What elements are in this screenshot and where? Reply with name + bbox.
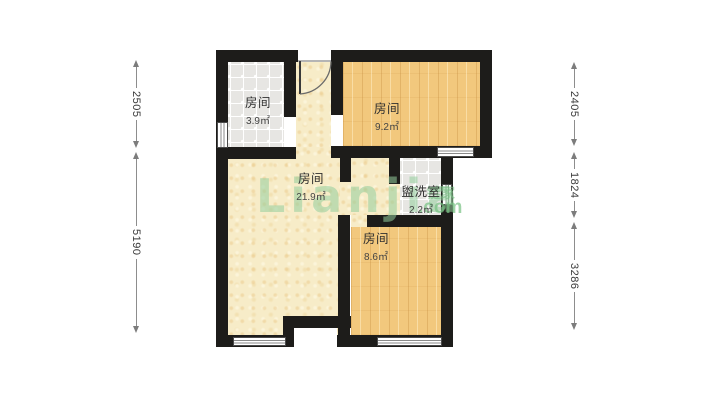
dimension-right-2: 1824	[566, 152, 582, 218]
arrow-up-icon	[571, 152, 577, 159]
room-area: 8.6㎡	[363, 248, 389, 263]
arrow-down-icon	[571, 323, 577, 330]
arrow-down-icon	[571, 139, 577, 146]
dimension-line	[574, 201, 575, 211]
dimension-value: 2505	[130, 88, 142, 120]
dimension-line	[574, 120, 575, 139]
dimension-value: 5190	[130, 226, 142, 258]
room-label-washroom: 盥洗室 2.2㎡	[401, 181, 440, 216]
room-name: 房间	[363, 228, 389, 247]
room-name: 房间	[296, 168, 325, 187]
dimension-line	[136, 67, 137, 88]
dimension-line	[136, 159, 137, 226]
dimension-value: 2405	[568, 88, 580, 120]
dimension-value: 3286	[568, 260, 580, 292]
room-label-top-left: 房间 3.9㎡	[245, 92, 271, 127]
room-area: 21.9㎡	[296, 188, 325, 203]
room-name: 房间	[374, 98, 400, 117]
arrow-up-icon	[133, 152, 139, 159]
dimension-line	[136, 259, 137, 326]
dimension-right-1: 2405	[566, 62, 582, 146]
dimension-line	[574, 159, 575, 169]
arrow-down-icon	[571, 211, 577, 218]
room-name: 盥洗室	[401, 181, 440, 200]
dimension-value: 1824	[568, 169, 580, 201]
room-area: 3.9㎡	[245, 112, 271, 127]
arrow-up-icon	[571, 222, 577, 229]
dimension-line	[574, 69, 575, 88]
arrow-up-icon	[571, 62, 577, 69]
room-label-bottom: 房间 8.6㎡	[363, 228, 389, 263]
dimension-line	[136, 120, 137, 141]
arrow-down-icon	[133, 326, 139, 333]
dimension-left-2: 5190	[128, 152, 144, 333]
room-label-living: 房间 21.9㎡	[296, 168, 325, 203]
room-name: 房间	[245, 92, 271, 111]
arrow-down-icon	[133, 141, 139, 148]
room-area: 9.2㎡	[374, 118, 400, 133]
dimension-right-3: 3286	[566, 222, 582, 330]
dimension-line	[574, 292, 575, 323]
dimension-left-1: 2505	[128, 60, 144, 148]
floorplan-canvas: Lianjia 链家 .com 房间 3.9㎡ 房间 9.2㎡ 房间 21.9㎡…	[0, 0, 710, 400]
room-label-top-right: 房间 9.2㎡	[374, 98, 400, 133]
room-area: 2.2㎡	[401, 201, 440, 216]
arrow-up-icon	[133, 60, 139, 67]
dimension-line	[574, 229, 575, 260]
